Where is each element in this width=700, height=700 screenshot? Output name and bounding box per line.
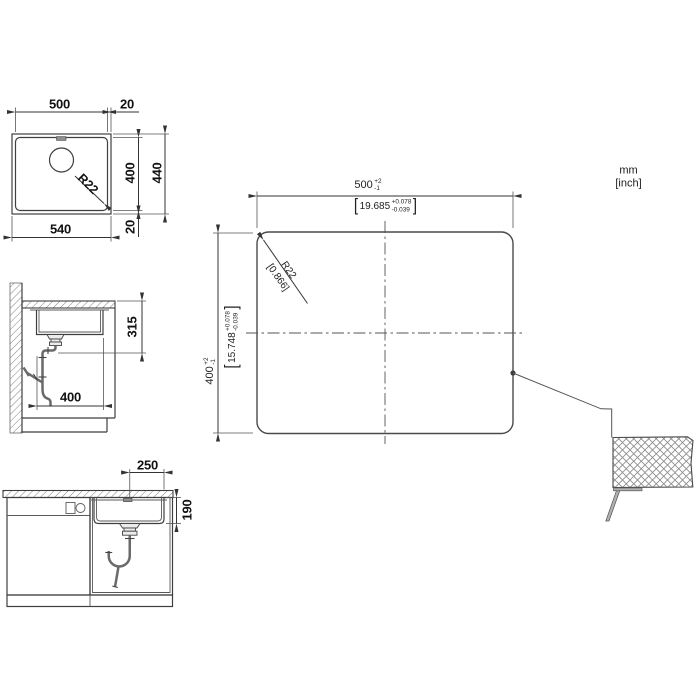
units-inch: [inch] bbox=[615, 177, 641, 190]
plan-depth-outer-dim: 440 bbox=[149, 162, 164, 183]
front-half-width-dim: 250 bbox=[137, 457, 158, 472]
value: 500 bbox=[354, 178, 372, 190]
plan-width-outer-dim: 540 bbox=[50, 221, 71, 236]
front-view-drawing bbox=[3, 469, 181, 607]
cutout-height-inch-dim: [15.748+0.078-0.039] bbox=[223, 304, 240, 370]
edge-detail-drawing bbox=[606, 437, 693, 521]
side-clearance-dim: 315 bbox=[125, 316, 140, 337]
drain-trap bbox=[109, 546, 130, 567]
overflow-slot bbox=[57, 137, 67, 141]
tolerance-minus: -0.039 bbox=[232, 311, 239, 331]
tolerance-plus: +0.078 bbox=[224, 311, 231, 331]
plan-width-inner-dim: 500 bbox=[49, 96, 70, 111]
cutout-template-drawing bbox=[213, 192, 612, 445]
plan-view-drawing bbox=[12, 108, 169, 242]
bracket-open: [ bbox=[354, 196, 358, 216]
plan-offset-right-dim: 20 bbox=[120, 96, 134, 111]
plan-depth-inner-dim: 400 bbox=[122, 162, 137, 183]
drain-trap bbox=[43, 346, 56, 406]
front-bowl-height-dim: 190 bbox=[179, 499, 194, 520]
bracket-close: ] bbox=[222, 305, 242, 309]
cutout-width-inch-dim: [19.685+0.078-0.039] bbox=[352, 198, 418, 215]
tolerance-minus: -1 bbox=[210, 357, 217, 364]
tolerance-plus: +2 bbox=[374, 177, 381, 184]
tolerance-minus: -0.039 bbox=[392, 206, 412, 213]
cutout-width-mm-dim: 500+2-1 bbox=[354, 177, 381, 191]
side-bowl-depth-dim: 400 bbox=[60, 390, 81, 405]
bracket-close: ] bbox=[413, 196, 417, 216]
overflow-slot bbox=[124, 498, 133, 502]
countertop-section bbox=[3, 491, 173, 498]
drain-hole bbox=[50, 148, 74, 172]
tolerance-plus: +0.078 bbox=[392, 199, 412, 206]
value: 15.748 bbox=[226, 332, 237, 363]
units-label: mm [inch] bbox=[615, 164, 641, 189]
bracket-open: [ bbox=[222, 364, 242, 368]
countertop-section bbox=[613, 437, 693, 488]
side-view-drawing bbox=[10, 283, 146, 433]
units-mm: mm bbox=[615, 164, 641, 177]
value: 400 bbox=[204, 366, 216, 384]
plan-offset-bottom-dim: 20 bbox=[123, 220, 138, 234]
cutout-height-mm-dim: 400+2-1 bbox=[203, 357, 217, 384]
left-cabinet bbox=[7, 498, 90, 596]
tolerance-plus: +2 bbox=[203, 357, 210, 364]
wall-section bbox=[10, 283, 22, 433]
sink-technical-drawing: .obj { fill:none; stroke:#3f3f3f; stroke… bbox=[0, 0, 700, 700]
bowl-section bbox=[37, 310, 104, 335]
countertop-section bbox=[22, 301, 115, 308]
value: 19.685 bbox=[360, 201, 391, 212]
sink-rim bbox=[614, 488, 643, 491]
sink-wall bbox=[606, 491, 620, 521]
sink-cabinet bbox=[90, 498, 173, 596]
drawing-linework: .obj { fill:none; stroke:#3f3f3f; stroke… bbox=[0, 0, 700, 700]
tolerance-minus: -1 bbox=[374, 185, 381, 192]
